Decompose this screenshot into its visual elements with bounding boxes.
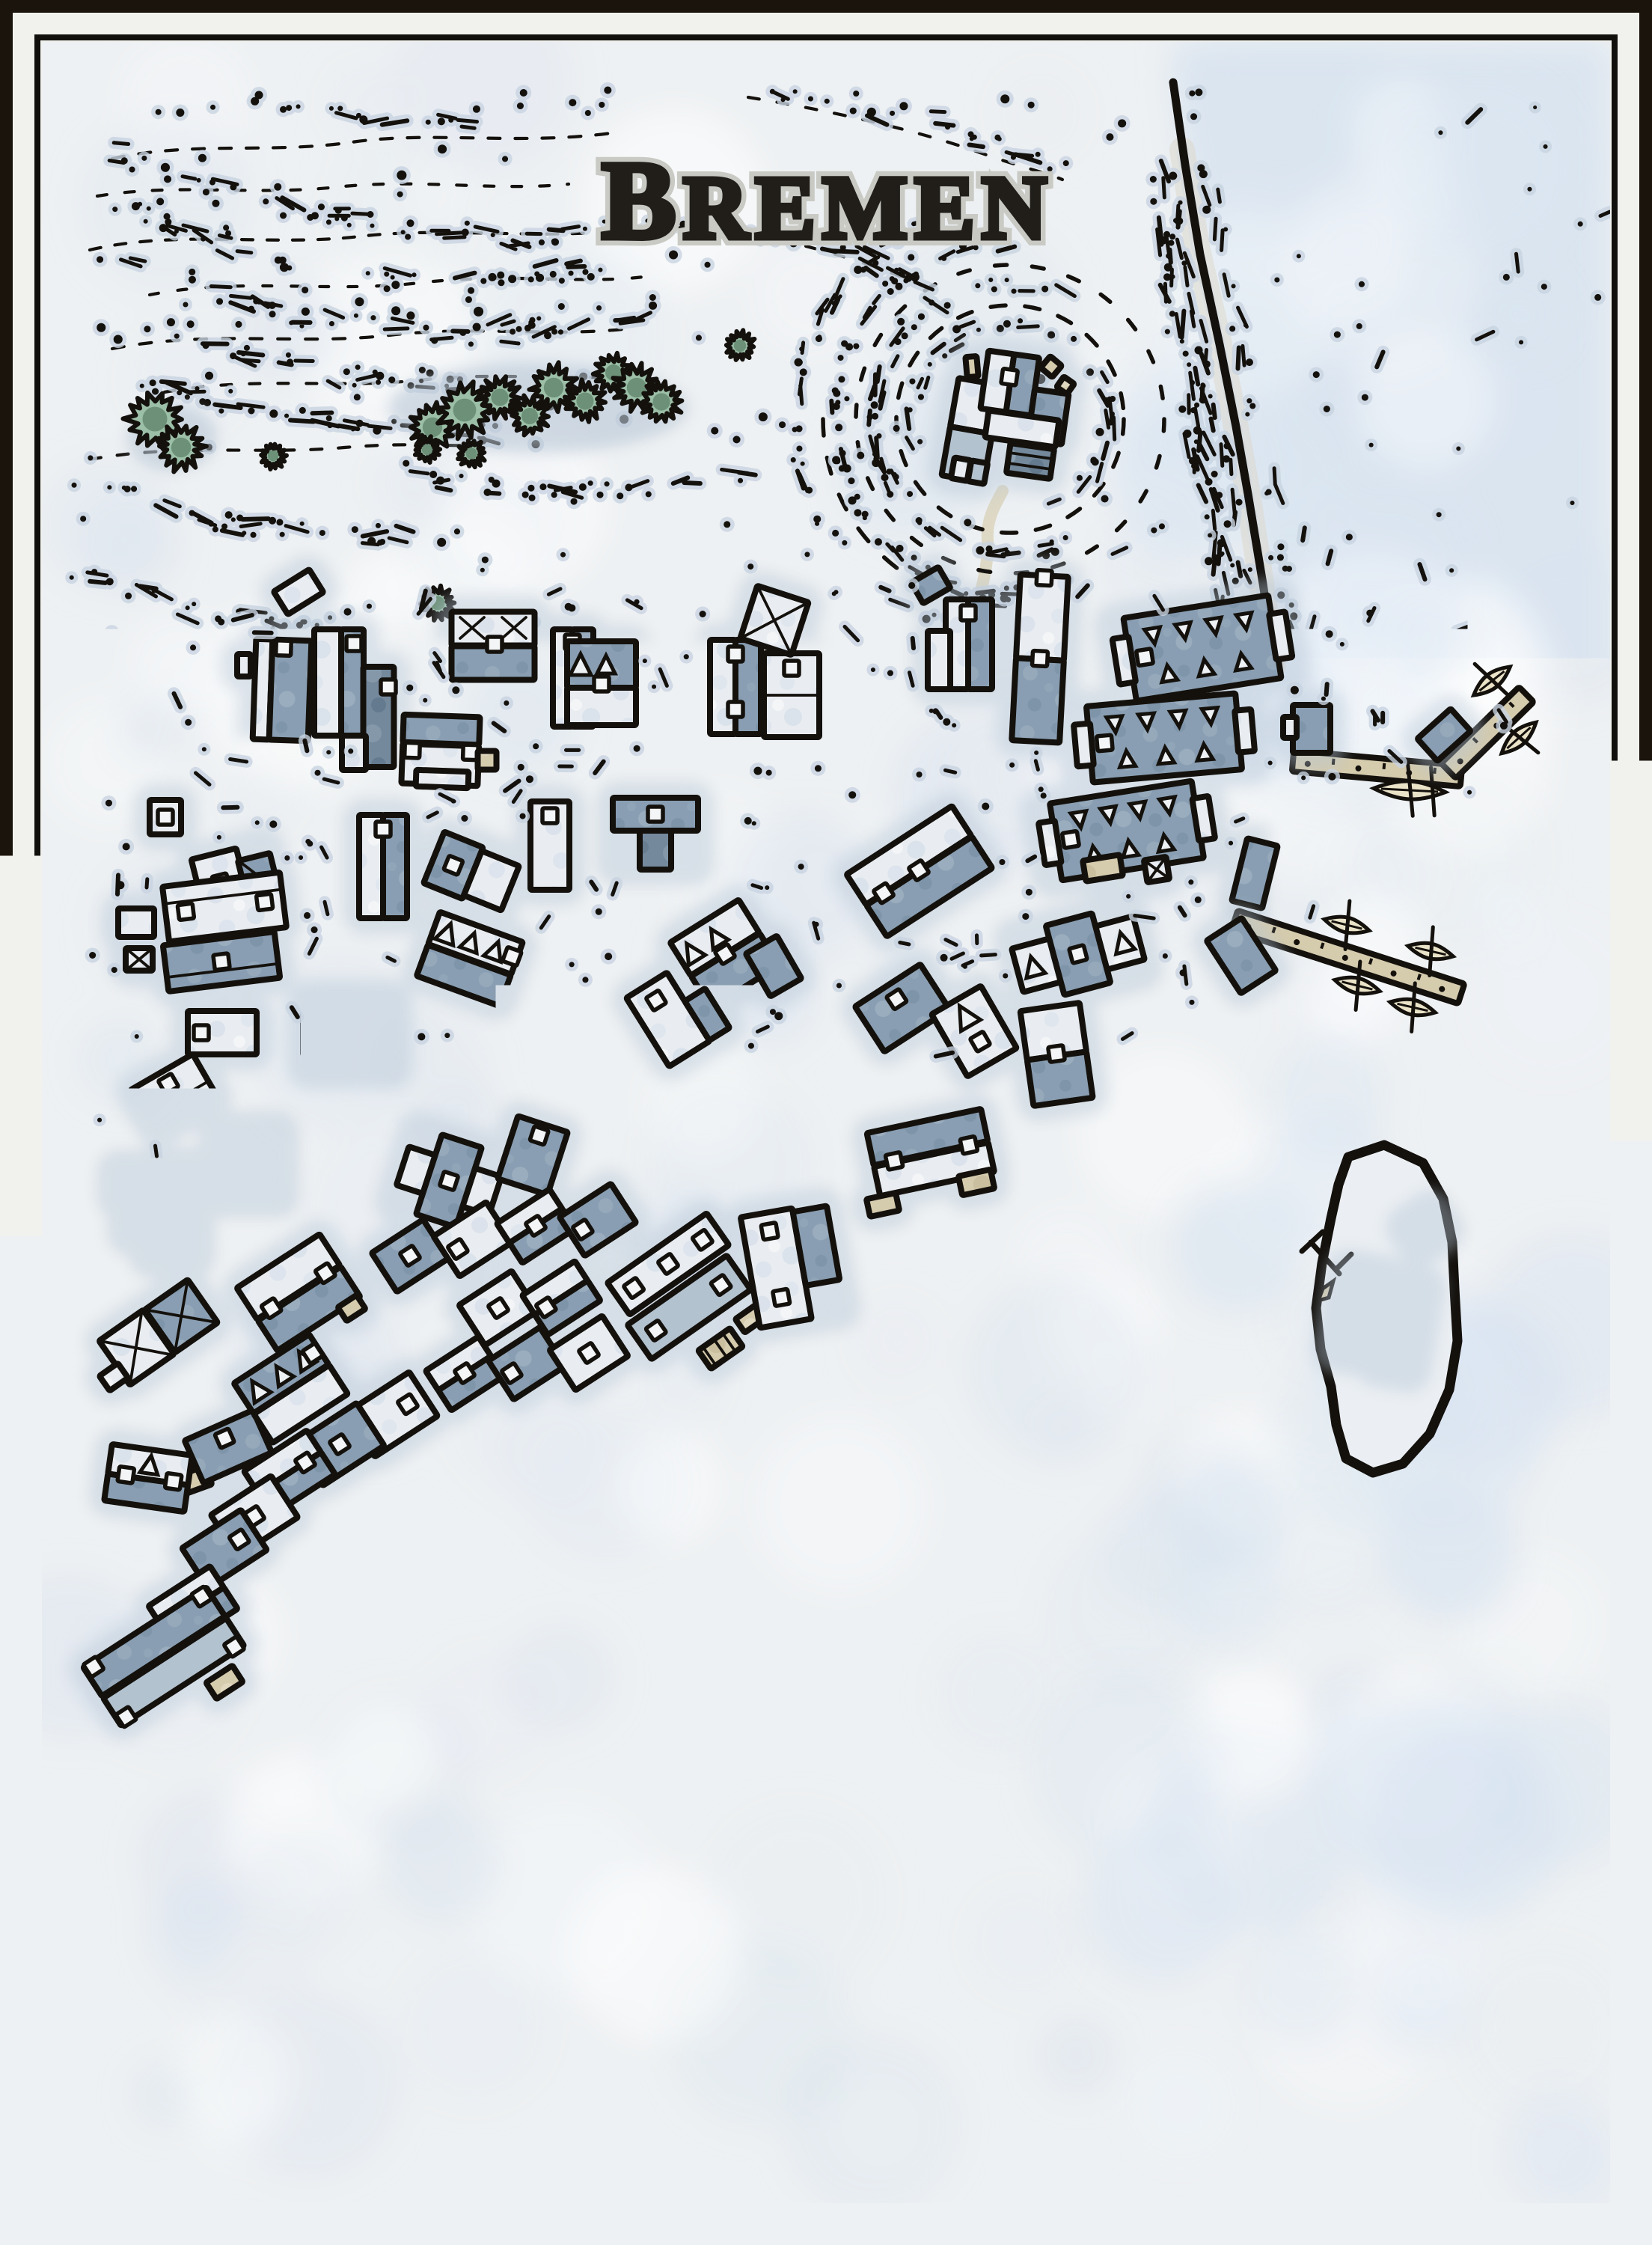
svg-text:100: 100	[979, 1973, 1061, 2024]
svg-text:500: 500	[1336, 2035, 1435, 2098]
svg-text:250: 250	[1107, 2035, 1206, 2098]
svg-text:0: 0	[916, 2042, 941, 2091]
svg-text:N: N	[207, 1944, 264, 2125]
svg-text:feet: feet	[1414, 2107, 1532, 2177]
